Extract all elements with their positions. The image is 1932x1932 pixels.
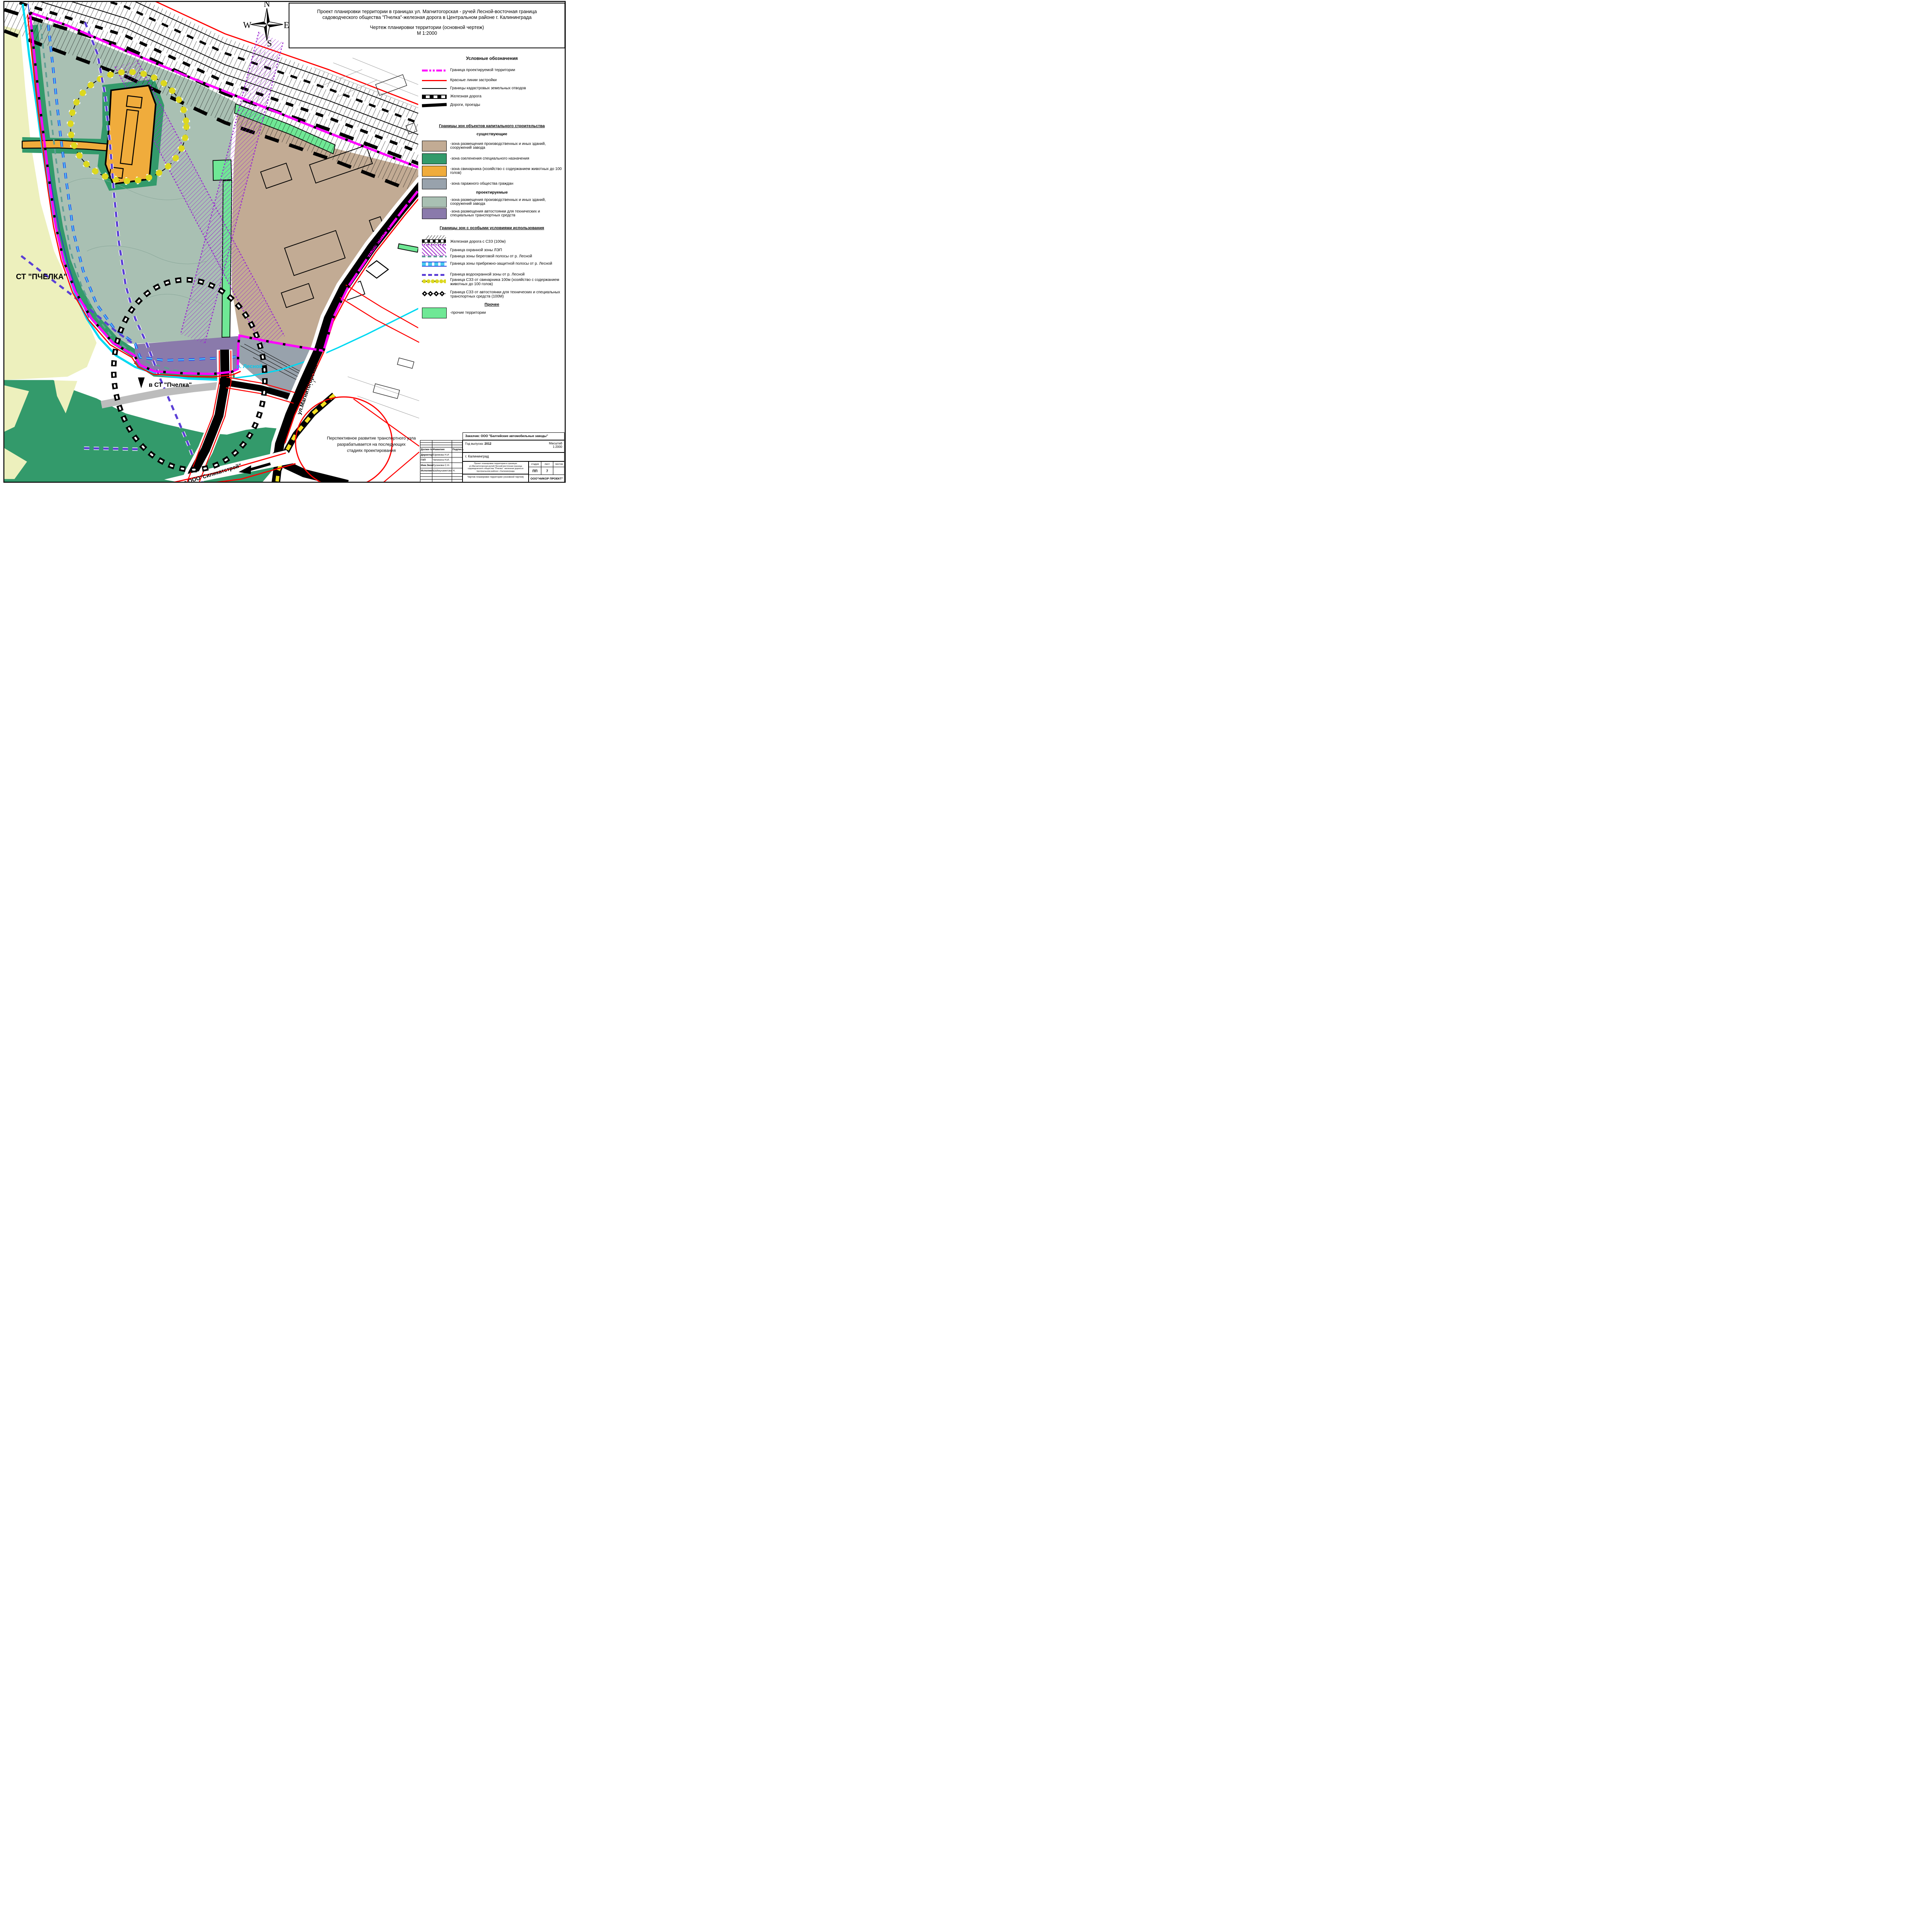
stamp-org: ООО"НИКОР ПРОЕКТ" bbox=[529, 474, 565, 482]
shore-protection-symbol bbox=[422, 262, 447, 267]
coastal-line-symbol bbox=[422, 256, 447, 257]
project-boundary-symbol bbox=[422, 70, 447, 71]
stamp-year: Год выпуска: 2012 bbox=[465, 442, 492, 446]
legend-item-project-boundary: Граница проектируемой территории bbox=[422, 68, 563, 73]
stamp-row-director: Директор Ефимова Н.И bbox=[420, 452, 463, 457]
svg-text:Перспективное развитие транспо: Перспективное развитие транспортного узл… bbox=[327, 436, 416, 440]
stamp-row-gap: ГАП Чепинога Н.И. bbox=[420, 457, 463, 463]
stamp-drawing-name: Чертеж планировки территории (основной ч… bbox=[463, 474, 528, 480]
szz-parking-symbol bbox=[422, 291, 447, 298]
compass-s: S bbox=[267, 39, 272, 48]
legend-item-parking: -зона размещения автостоянки для техниче… bbox=[422, 208, 563, 219]
parking-swatch bbox=[422, 208, 447, 219]
title-line2: садоводческого общества "Пчелка"-железна… bbox=[289, 15, 565, 20]
stamp-stage-label: стадия bbox=[529, 462, 541, 467]
railway-symbol bbox=[422, 95, 447, 99]
stamp-customer: Заказчик: ООО "Балтийские автомобильные … bbox=[465, 434, 564, 438]
stamp-sheet-value: 7 bbox=[541, 467, 553, 474]
label-st-pchelka: СТ "ПЧЕЛКА" bbox=[16, 272, 67, 281]
stamp-sheets-label: листов bbox=[553, 462, 565, 467]
legend-item-greenery: -зона озеленения специального назначения bbox=[422, 153, 563, 164]
legend-special-header: Границы зон с особыми условиями использо… bbox=[420, 226, 564, 230]
other-territories-swatch bbox=[422, 308, 447, 318]
legend-projected-header: проектируемые bbox=[420, 190, 564, 195]
cadastral-line-symbol bbox=[422, 88, 447, 89]
red-line-symbol bbox=[422, 80, 447, 81]
plan-sheet: N W E S СТ "ПЧЕЛКА" в СТ "Пчелка" р. Лес… bbox=[0, 0, 569, 485]
legend-item-projected-factory: -зона размещения производственных и иных… bbox=[422, 197, 563, 207]
title-line1: Проект планировки территории в границах … bbox=[289, 9, 565, 15]
label-v-st-pchelka: в СТ "Пчелка" bbox=[149, 382, 192, 388]
title-line3: Чертеж планировки территории (основной ч… bbox=[289, 25, 565, 30]
zone-pig-farm bbox=[105, 85, 156, 184]
legend: Условные обозначения Граница проектируем… bbox=[420, 51, 564, 324]
stamp-scale: Масштаб 1:2000 bbox=[549, 442, 562, 449]
legend-item-pig-farm: -зона свинарника (хозяйство с содержание… bbox=[422, 166, 563, 177]
legend-existing-header: существующие bbox=[420, 132, 564, 136]
water-protection-symbol bbox=[422, 274, 447, 276]
road-symbol bbox=[422, 103, 447, 107]
stamp-sheet-label: лист bbox=[541, 462, 553, 467]
legend-other-header: Прочее bbox=[420, 302, 564, 307]
svg-text:разрабатывается на последующих: разрабатывается на последующих bbox=[337, 442, 406, 447]
stamp-col-sign: Подпись bbox=[452, 447, 464, 452]
stamp-stage-value: ПП bbox=[529, 467, 541, 474]
stamp-row-engineer: Инж.Экон. Русанова С.Н. bbox=[420, 463, 463, 468]
pig-farm-swatch bbox=[422, 166, 447, 177]
legend-item-garage: -зона гаражного общества граждан bbox=[422, 179, 563, 189]
label-river-lesnoy: р. Лесной bbox=[236, 363, 262, 369]
legend-item-szz-parking: Граница СЗЗ от автостоянки для техническ… bbox=[422, 291, 563, 299]
existing-factory-swatch bbox=[422, 141, 447, 151]
legend-item-coastal: Граница зоны береговой полосы от р. Лесн… bbox=[422, 255, 563, 259]
projected-factory-swatch bbox=[422, 197, 447, 207]
title-stamp: Заказчик: ООО "Балтийские автомобильные … bbox=[420, 432, 565, 482]
legend-item-shore-protection: Граница зоны прибрежно-защитной полосы о… bbox=[422, 262, 563, 267]
szz-pig-symbol bbox=[422, 279, 447, 286]
legend-header: Условные обозначения bbox=[420, 56, 564, 61]
legend-item-existing-factory: -зона размещения производственных и иных… bbox=[422, 141, 563, 151]
compass-w: W bbox=[243, 20, 252, 30]
legend-item-railway: Железная дорога bbox=[422, 95, 563, 99]
svg-text:стадиях проектирования: стадиях проектирования bbox=[347, 448, 396, 453]
legend-item-roads: Дороги, проезды bbox=[422, 103, 563, 107]
title-line4: М 1:2000 bbox=[289, 31, 565, 36]
legend-item-cadastral: Границы кадастровых земельных отводов bbox=[422, 87, 563, 91]
stamp-col-name: Фамилия bbox=[433, 447, 444, 452]
stamp-col-position: Должн-ть bbox=[421, 447, 433, 452]
legend-item-red-lines: Красные линии застройки bbox=[422, 78, 563, 83]
greenery-swatch bbox=[422, 153, 447, 164]
legend-item-other-territories: -прочие территории bbox=[422, 308, 563, 318]
stamp-row-executor: Исполнил Шаймухаметова Н. bbox=[420, 468, 463, 474]
legend-capital-header: Границы зон объектов капитального строит… bbox=[420, 124, 564, 128]
legend-item-szz-pig: Граница СЗЗ от свинарника 100м (хозяйств… bbox=[422, 278, 563, 286]
stamp-sheets-value bbox=[553, 467, 565, 474]
garage-swatch bbox=[422, 179, 447, 189]
stamp-project-name: Проект планировки территории в границах … bbox=[463, 462, 528, 473]
title-block: Проект планировки территории в границах … bbox=[289, 3, 565, 48]
legend-item-water-protection: Граница водоохранной зоны от р. Лесной bbox=[422, 273, 563, 277]
stamp-city: г. Калининград bbox=[465, 454, 564, 458]
